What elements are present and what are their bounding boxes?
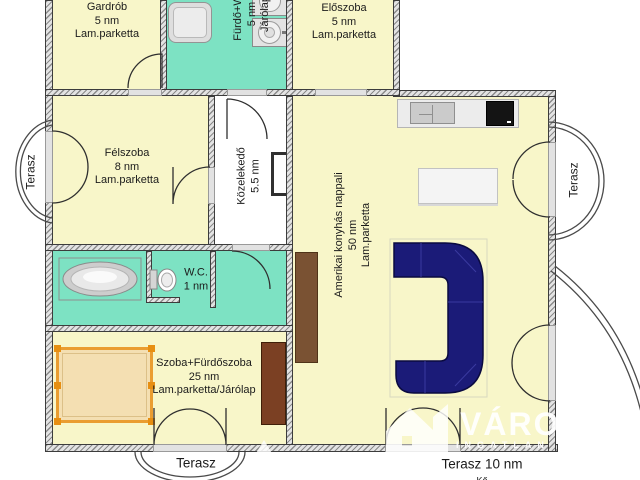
room-label-gardrob: Gardrób 5 nm Lam.parketta <box>75 1 139 42</box>
room-bath-strip-floor <box>53 251 286 325</box>
dining-table <box>418 168 498 204</box>
terrace-bottom-right-arc <box>551 266 640 480</box>
wall-wc-horizontal <box>146 297 180 303</box>
sink-faucet <box>419 114 432 115</box>
bed-post <box>54 345 61 352</box>
room-floor: Lam.parketta <box>312 29 376 43</box>
wardrobe <box>261 342 286 425</box>
wall-mid-lower <box>45 325 293 332</box>
shower-tray <box>168 2 212 43</box>
terrace-label-bottom: Terasz <box>176 456 216 470</box>
terrace-label-bottom-right: Terasz 10 nm <box>441 457 522 471</box>
room-area: 5.5 nm <box>249 147 263 205</box>
wall-bath-stub <box>210 251 216 308</box>
room-label-kozlekedo: Közelekedő 5.5 nm <box>236 147 263 205</box>
room-floor: Lam.parketta <box>75 28 139 42</box>
room-area: 25 nm <box>152 370 255 384</box>
floor-plan: Gardrób 5 nm Lam.parketta Fürdő+WC 5 nm … <box>0 0 640 480</box>
bed-inner <box>62 353 147 417</box>
room-floor: Járólap <box>259 0 273 41</box>
watermark-subtitle: INGATLAN <box>456 440 550 450</box>
terrace-bottom-right-floor: Kő <box>476 474 487 480</box>
room-floor: Lam.parketta/Járólap <box>152 384 255 398</box>
opening-nappali-right-lower <box>548 325 556 401</box>
room-label-nappali: Amerikai konyhás nappali 50 nm Lam.parke… <box>333 172 374 297</box>
sink-divider <box>432 105 433 123</box>
wall-gardrob-furdo <box>160 0 167 90</box>
shower-tray-inner <box>173 7 207 38</box>
bed-post <box>148 418 155 425</box>
room-name: Félszoba <box>95 147 159 161</box>
room-label-felszoba: Félszoba 8 nm Lam.parketta <box>95 147 159 188</box>
room-floor: Lam.parketta <box>95 174 159 188</box>
room-area: 50 nm <box>346 172 360 297</box>
terrace-label-left: Terasz <box>24 154 38 189</box>
room-name: Közelekedő <box>236 147 250 205</box>
stove <box>486 101 514 126</box>
bed-post <box>148 345 155 352</box>
room-name: Előszoba <box>312 2 376 16</box>
wall-top-right <box>393 90 556 97</box>
room-name: Amerikai konyhás nappali <box>333 172 347 297</box>
bed-post <box>54 418 61 425</box>
opening-kozlekedo-bath <box>232 244 270 251</box>
tv-stand <box>295 252 318 363</box>
room-area: 5 nm <box>75 14 139 28</box>
kitchen-sink <box>410 102 455 124</box>
room-floor: Lam.parketta <box>360 172 374 297</box>
room-label-furdo: Fürdő+WC 5 nm Járólap <box>232 0 273 41</box>
room-area: 5 nm <box>245 0 259 41</box>
wall-furdo-eloszoba <box>286 0 293 90</box>
bed-post <box>54 382 61 389</box>
watermark-brand: VÁRO <box>460 406 560 443</box>
room-area: 5 nm <box>312 15 376 29</box>
room-nappali-floor <box>293 96 548 444</box>
wall-eloszoba-right <box>393 0 400 92</box>
room-area: 1 nm <box>184 280 208 294</box>
opening-nappali-terrace <box>385 444 461 452</box>
opening-felszoba-terrace <box>45 131 53 203</box>
terrace-label-right: Terasz <box>567 162 581 197</box>
wall-left <box>45 0 53 452</box>
stove-mark <box>507 121 511 123</box>
bed <box>56 347 153 423</box>
opening-szoba-terrace <box>153 444 227 452</box>
opening-nappali-right-upper <box>548 142 556 217</box>
opening-eloszoba-nappali <box>315 89 367 96</box>
room-name: W.C. <box>184 267 208 281</box>
room-label-eloszoba: Előszoba 5 nm Lam.parketta <box>312 2 376 43</box>
room-label-wc: W.C. 1 nm <box>184 267 208 294</box>
room-name: Gardrób <box>75 1 139 15</box>
room-label-szoba: Szoba+Fürdőszoba 25 nm Lam.parketta/Járó… <box>152 357 255 398</box>
wall-nappali-left <box>286 96 293 445</box>
room-name: Szoba+Fürdőszoba <box>152 357 255 371</box>
wall-wc-vertical <box>146 251 152 303</box>
opening-furdo <box>227 89 267 96</box>
room-area: 8 nm <box>95 160 159 174</box>
room-name: Fürdő+WC <box>232 0 246 41</box>
opening-gardrob <box>128 89 162 96</box>
opening-felszoba-door <box>208 167 215 204</box>
